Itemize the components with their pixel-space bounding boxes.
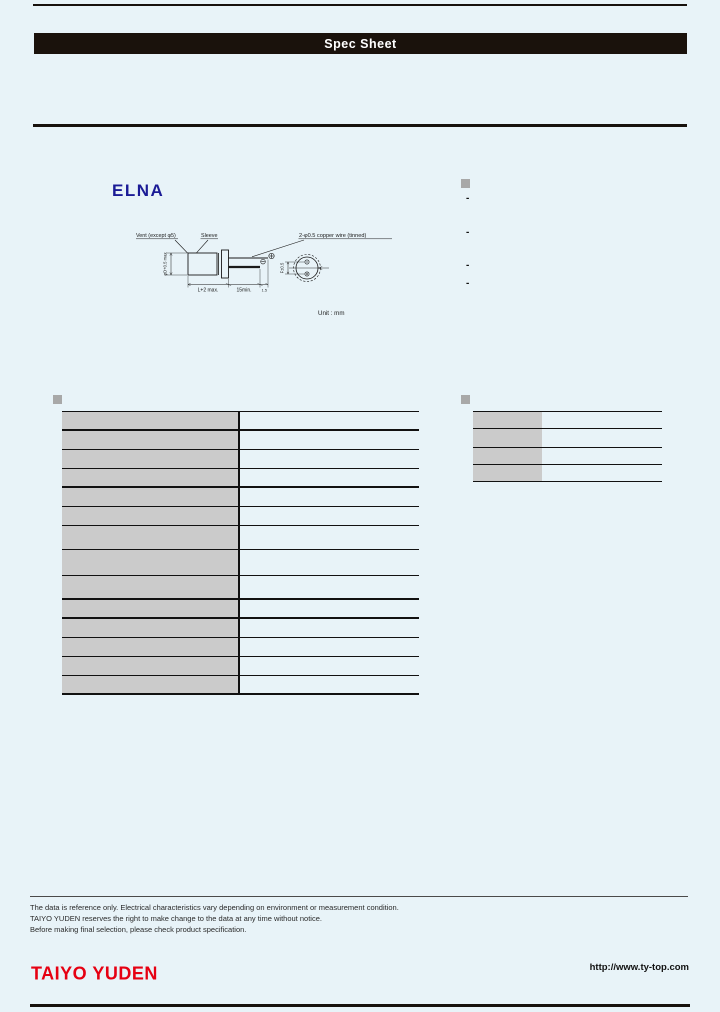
feature-dash-item: - [466, 264, 472, 268]
lead-length-dim-label: 15min. [236, 288, 251, 294]
spec-label-cell [62, 469, 240, 486]
spec-value-cell [240, 469, 419, 486]
spec-value-cell [240, 619, 419, 637]
spec-label-cell [62, 619, 240, 637]
spec-value-cell [240, 507, 419, 525]
spec-value-cell [240, 412, 419, 429]
spec-table-row [62, 526, 419, 550]
capacitor-body [188, 253, 217, 275]
spec-label-cell [62, 488, 240, 506]
spec-table-row [62, 488, 419, 507]
spec-table-row [62, 657, 419, 676]
mini-label-cell [473, 448, 542, 464]
spec-label-cell [62, 450, 240, 468]
spec-table-row [62, 600, 419, 619]
bottom-rule [30, 1004, 690, 1007]
disclaimer-line: Before making final selection, please ch… [30, 925, 670, 936]
spec-label-cell [62, 526, 240, 549]
spec-label-cell [62, 576, 240, 598]
spec-table-row [62, 676, 419, 695]
wire-label: 2-φ0.5 copper wire (tinned) [299, 233, 367, 239]
unit-note: Unit : mm [318, 310, 344, 317]
spec-table-row [62, 550, 419, 576]
spec-label-cell [62, 600, 240, 617]
mini-value-cell [542, 465, 662, 481]
pitch-dim-label: F±0.5 [280, 262, 285, 273]
spec-value-cell [240, 600, 419, 617]
mini-table-row [473, 448, 662, 465]
disclaimer-notes: The data is reference only. Electrical c… [30, 903, 670, 935]
feature-dash-item: - [466, 231, 472, 235]
spec-table-row [62, 638, 419, 657]
spec-sheet-page: Spec Sheet ELNA Vent (except φ5) Sleeve … [0, 0, 720, 1012]
spec-value-cell [240, 638, 419, 656]
spec-table-row [62, 412, 419, 431]
spec-table-row [62, 507, 419, 526]
capacitor-seal-disc [222, 250, 229, 278]
spec-value-cell [240, 550, 419, 575]
mini-table-row [473, 465, 662, 482]
tip-dim-label: 1.5 [262, 289, 267, 293]
spec-label-cell [62, 676, 240, 693]
top-rule [33, 4, 687, 6]
elna-logo: ELNA [112, 181, 164, 201]
footer-url: http://www.ty-top.com [590, 962, 689, 973]
spec-table-row [62, 576, 419, 600]
spec-label-cell [62, 638, 240, 656]
mini-table [473, 411, 662, 482]
taiyo-yuden-logo: TAIYO YUDEN [31, 962, 158, 984]
spec-label-cell [62, 507, 240, 525]
title-bar: Spec Sheet [34, 33, 687, 54]
diameter-dim-label: φD+0.5 max [163, 252, 168, 276]
mini-value-cell [542, 412, 662, 428]
page-title: Spec Sheet [324, 37, 396, 51]
vent-label: Vent (except φ5) [136, 233, 176, 239]
length-dim-label: L+2 max. [198, 288, 219, 294]
spec-label-cell [62, 550, 240, 575]
sleeve-label: Sleeve [201, 233, 217, 239]
spec-table-row [62, 450, 419, 469]
spec-value-cell [240, 488, 419, 506]
disclaimer-line: The data is reference only. Electrical c… [30, 903, 670, 914]
mini-value-cell [542, 448, 662, 464]
spec-section-bullet-icon [53, 395, 62, 404]
spec-label-cell [62, 657, 240, 675]
features-bullet-icon [461, 179, 470, 188]
mini-label-cell [473, 429, 542, 447]
spec-table [62, 411, 419, 695]
spec-value-cell [240, 450, 419, 468]
capacitor-dimension-diagram: Vent (except φ5) Sleeve 2-φ0.5 copper wi… [125, 225, 397, 320]
spec-value-cell [240, 526, 419, 549]
spec-value-cell [240, 431, 419, 449]
mini-table-row [473, 429, 662, 448]
spec-value-cell [240, 576, 419, 598]
spec-table-row [62, 431, 419, 450]
mini-label-cell [473, 412, 542, 428]
mini-value-cell [542, 429, 662, 447]
spec-label-cell [62, 412, 240, 429]
feature-dash-item: - [466, 197, 472, 201]
spec-label-cell [62, 431, 240, 449]
spec-value-cell [240, 657, 419, 675]
notes-divider [30, 896, 688, 897]
features-list: ---- [466, 197, 478, 292]
header-rule [33, 124, 687, 127]
feature-dash-item: - [466, 282, 472, 286]
mini-section-bullet-icon [461, 395, 470, 404]
disclaimer-line: TAIYO YUDEN reserves the right to make c… [30, 914, 670, 925]
mini-label-cell [473, 465, 542, 481]
mini-table-row [473, 412, 662, 429]
spec-value-cell [240, 676, 419, 693]
spec-table-row [62, 469, 419, 488]
spec-table-row [62, 619, 419, 638]
